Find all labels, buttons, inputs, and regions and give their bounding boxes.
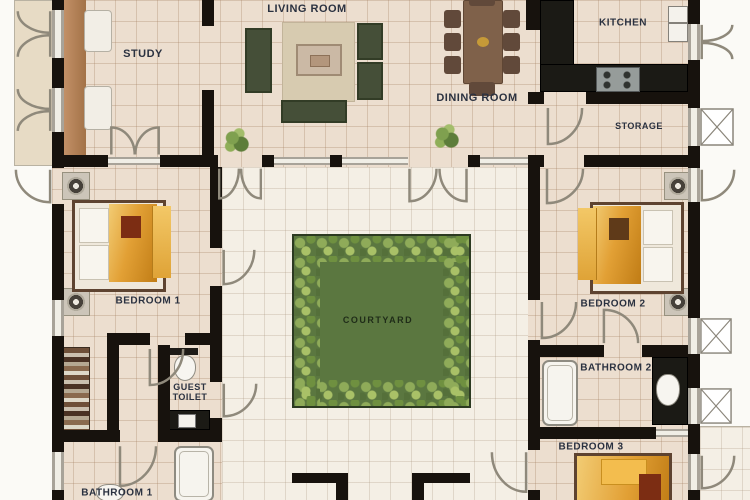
door-swing-icon <box>602 308 640 345</box>
window-glass <box>688 318 700 354</box>
door-swing-icon <box>490 450 528 494</box>
door-swing-icon <box>110 126 136 156</box>
room-label-dining-room: DINING ROOM <box>436 92 517 104</box>
door-swing-icon <box>222 382 258 418</box>
nightstand <box>62 172 90 200</box>
bed-throw-red <box>121 216 141 238</box>
bed-throw-brown <box>609 218 629 240</box>
window-glass <box>688 24 700 60</box>
bed-throw-blanket <box>578 208 597 280</box>
bathroom2-toilet <box>656 374 680 406</box>
wall-segment <box>528 427 656 439</box>
study-chair <box>84 10 112 52</box>
dining-chair <box>444 56 461 74</box>
door-swing-icon <box>700 454 736 490</box>
courtyard-foliage-right <box>443 236 469 406</box>
kitchen-stove <box>596 67 640 92</box>
room-label-guest-toilet: GUEST TOILET <box>167 382 213 402</box>
room-label-bathroom1: BATHROOM 1 <box>81 487 152 498</box>
window-glass <box>688 108 700 146</box>
wall-segment <box>202 90 214 167</box>
wall-segment <box>210 418 222 430</box>
bedroom2-bed <box>590 202 684 294</box>
door-swing-icon <box>408 167 438 203</box>
kitchen-fridge <box>668 6 688 42</box>
dining-chair <box>469 0 495 6</box>
room-label-storage: STORAGE <box>615 121 663 131</box>
wall-segment <box>688 354 700 388</box>
casement-window-icon <box>700 108 734 146</box>
door-swing-icon <box>14 168 52 204</box>
door-swing-icon <box>700 42 734 60</box>
bed-pillow <box>79 208 109 243</box>
wall-segment <box>528 345 604 357</box>
bed-throw-blanket <box>152 206 171 278</box>
sliding-glass-door <box>480 157 528 165</box>
wall-segment <box>52 490 64 500</box>
wall-segment <box>52 155 108 167</box>
sofa-right-lower <box>357 62 383 100</box>
courtyard-foliage-left <box>294 236 320 406</box>
casement-window-icon <box>700 318 732 354</box>
bed-pillow <box>643 210 673 245</box>
dining-chair <box>444 10 461 28</box>
room-label-kitchen: KITCHEN <box>599 17 647 28</box>
sliding-glass-door <box>342 157 408 165</box>
window-glass <box>688 168 700 202</box>
door-swing-icon <box>118 444 158 488</box>
wall-segment <box>185 333 222 345</box>
door-swing-icon <box>16 10 52 34</box>
wall-segment <box>52 430 120 442</box>
sofa-bottom <box>281 100 347 123</box>
door-swing-icon <box>16 88 52 110</box>
floor-plan: LIVING ROOM STUDY KITCHEN DINING ROOM ST… <box>0 0 750 500</box>
bed-throw-red <box>639 474 661 500</box>
wall-segment <box>528 155 544 167</box>
window-glass <box>52 88 64 132</box>
wall-segment <box>528 490 540 500</box>
window-glass <box>688 454 700 490</box>
window-glass <box>688 388 700 424</box>
wall-segment <box>528 439 540 450</box>
wall-segment <box>52 58 64 88</box>
sliding-glass-door <box>274 157 330 165</box>
wall-segment <box>336 473 348 500</box>
fridge-divider <box>669 22 687 24</box>
wall-segment <box>688 0 700 24</box>
room-label-courtyard: COURTYARD <box>343 315 413 325</box>
room-label-bathroom2: BATHROOM 2 <box>580 362 651 373</box>
sofa-right-upper <box>357 23 383 60</box>
sink-basin <box>178 414 196 428</box>
wall-segment <box>52 204 64 300</box>
door-swing-icon <box>545 167 585 205</box>
wall-segment <box>688 490 700 500</box>
wall-segment <box>688 424 700 454</box>
wall-segment <box>412 473 424 500</box>
dining-chair <box>503 10 520 28</box>
bed-pillow <box>79 245 109 280</box>
wall-segment <box>202 0 214 26</box>
dining-chair <box>503 33 520 51</box>
coffee-table-tray <box>310 55 330 67</box>
door-swing-icon <box>700 168 736 202</box>
wall-segment <box>52 0 64 10</box>
dining-centerpiece <box>477 37 489 47</box>
window-glass <box>656 429 688 437</box>
door-swing-icon <box>546 106 584 146</box>
door-swing-icon <box>16 110 52 132</box>
study-desk <box>64 0 86 156</box>
nightstand <box>62 288 90 316</box>
bedroom3-bed <box>574 453 672 500</box>
wall-segment <box>584 155 700 167</box>
coffee-table <box>296 44 342 76</box>
wall-segment <box>262 155 274 167</box>
room-label-bedroom1: BEDROOM 1 <box>115 295 180 306</box>
wall-segment <box>330 155 342 167</box>
door-swing-icon <box>438 167 468 203</box>
potted-plant-icon <box>224 128 250 154</box>
wardrobe <box>62 347 90 433</box>
wall-segment <box>528 92 544 104</box>
bathtub <box>174 446 214 500</box>
casement-window-icon <box>700 388 732 424</box>
door-swing-icon <box>218 167 240 200</box>
door-swing-icon <box>240 167 262 200</box>
room-label-bedroom3: BEDROOM 3 <box>558 441 623 452</box>
dining-chair <box>503 56 520 74</box>
wall-segment <box>586 92 700 104</box>
dining-chair <box>444 33 461 51</box>
door-swing-icon <box>16 34 52 58</box>
window-glass <box>52 452 64 490</box>
wall-segment <box>526 0 540 30</box>
wall-segment <box>528 357 540 427</box>
window-glass <box>52 300 64 336</box>
room-label-study: STUDY <box>123 48 163 60</box>
wall-segment <box>107 333 150 345</box>
dining-table <box>463 0 503 84</box>
door-swing-icon <box>222 248 256 286</box>
window-glass <box>52 10 64 58</box>
room-label-bedroom2: BEDROOM 2 <box>580 298 645 309</box>
room-label-living-room: LIVING ROOM <box>267 3 346 15</box>
door-swing-icon <box>700 24 734 42</box>
wall-segment <box>210 345 222 382</box>
door-swing-icon <box>540 300 578 340</box>
sofa-left <box>245 28 272 93</box>
potted-plant-icon <box>434 124 460 150</box>
wall-segment <box>107 345 119 430</box>
wall-segment <box>528 167 540 300</box>
door-swing-icon <box>134 126 160 156</box>
wall-segment <box>158 430 222 442</box>
wall-segment <box>468 155 480 167</box>
wall-segment <box>688 202 700 318</box>
guest-toilet-vanity <box>164 410 210 430</box>
study-chair <box>84 86 112 130</box>
bathtub <box>542 360 578 426</box>
sliding-glass-door <box>108 157 160 165</box>
bed-pillow <box>643 247 673 282</box>
